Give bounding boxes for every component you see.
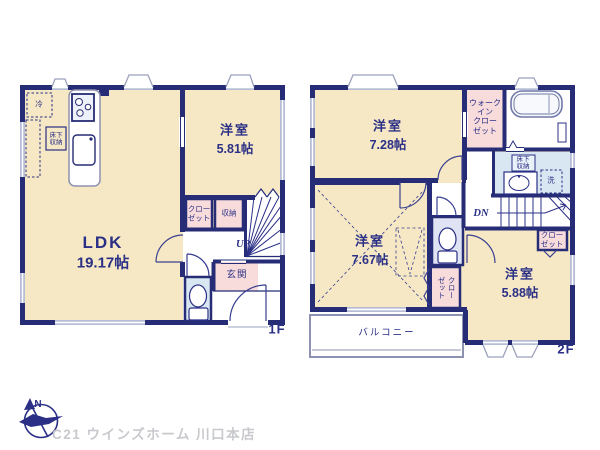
bedroom-588-label: 洋室 [505,268,535,283]
floor1-tag: 1F [268,323,285,338]
floor1-plan-drawing [10,68,302,336]
walk-in-closet-label: ウォーク イン クロー ゼット [469,99,501,136]
bedroom-728-area: 7.28帖 [370,138,407,152]
stairs-down-label: DN [473,208,488,220]
washer-label: 洗 [547,177,555,186]
underfloor-1f-label: 床下 収納 [50,132,63,146]
toilet-fixture-2f [438,228,457,263]
bedroom-588-area: 5.88帖 [502,286,539,300]
floor2-plan-drawing [300,68,592,368]
floorplan-canvas: LDK 19.17帖 洋室 5.81帖 クロー ゼット 収納 床下 収納 冷 U… [0,0,600,450]
closet-767-label: クローゼット [436,275,456,302]
agency-watermark: C21 ウインズホーム 川口本店 [52,423,256,443]
bedroom-767-area: 7.67帖 [352,253,389,267]
bathtub [511,91,562,117]
bedroom-767-label: 洋室 [355,235,385,250]
north-arrowhead [24,398,35,410]
toilet-fixture-1f [189,285,208,320]
floor2-tag: 2F [557,343,574,358]
ldk-area: 19.17帖 [77,254,130,271]
closet-588-label: クロー ゼット [541,231,564,248]
entrance-label: 玄関 [226,271,247,282]
refrigerator-label: 冷 [35,101,43,110]
stairs-up-label: UP [236,239,250,251]
bedroom-728-label: 洋室 [373,120,403,135]
bedroom-581-label: 洋室 [220,124,250,139]
kitchen-unit [69,90,100,186]
closet-1f-label: クロー ゼット [188,205,211,222]
balcony-label: バルコニー [358,329,415,340]
bedroom-581-area: 5.81帖 [217,142,254,156]
north-label: N [34,399,41,410]
underfloor-2f-label: 床下 収納 [517,156,530,170]
ldk-label: LDK [83,233,124,253]
storage-1f-label: 収納 [222,210,237,219]
